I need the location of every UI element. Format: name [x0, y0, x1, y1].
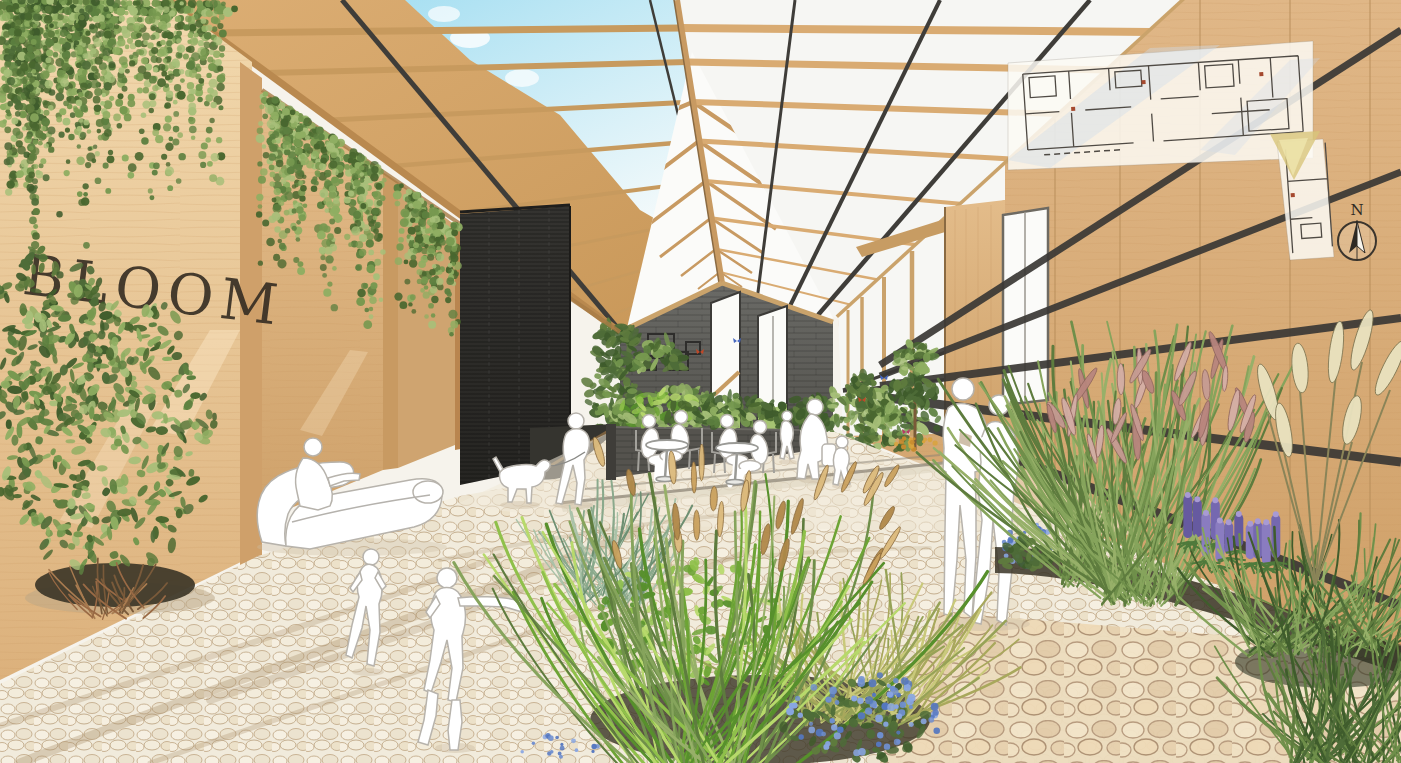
wall-end-post — [606, 424, 616, 480]
cloud — [428, 6, 460, 22]
cloud — [505, 69, 539, 87]
rendering-canvas: BLOOM — [0, 0, 1401, 763]
architectural-rendering: BLOOM — [0, 0, 1401, 763]
bay-post — [383, 172, 398, 470]
north-label: N — [1350, 201, 1363, 219]
